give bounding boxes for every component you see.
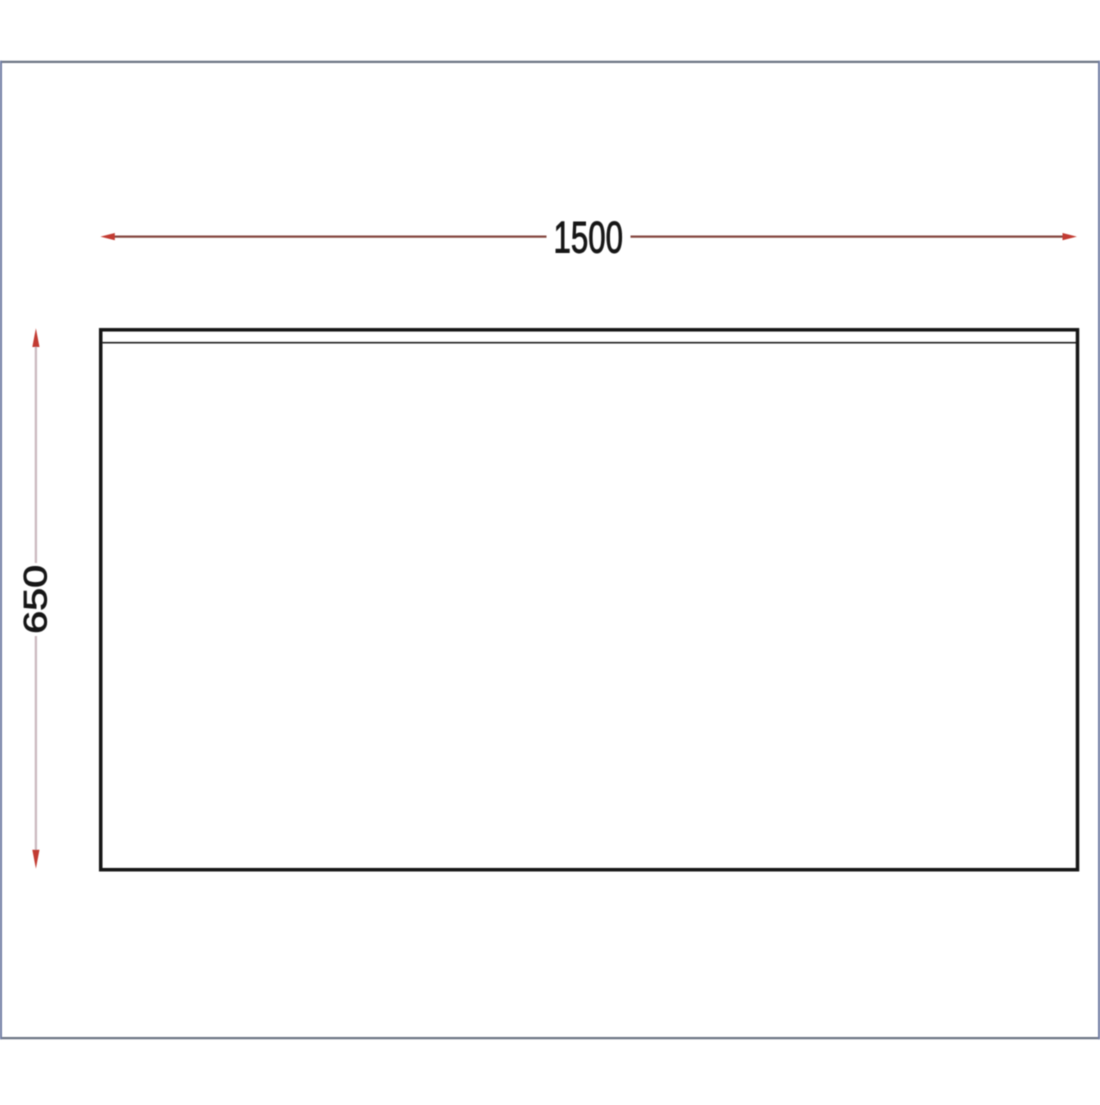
svg-text:1500: 1500 — [553, 213, 622, 263]
svg-text:650: 650 — [17, 565, 53, 634]
